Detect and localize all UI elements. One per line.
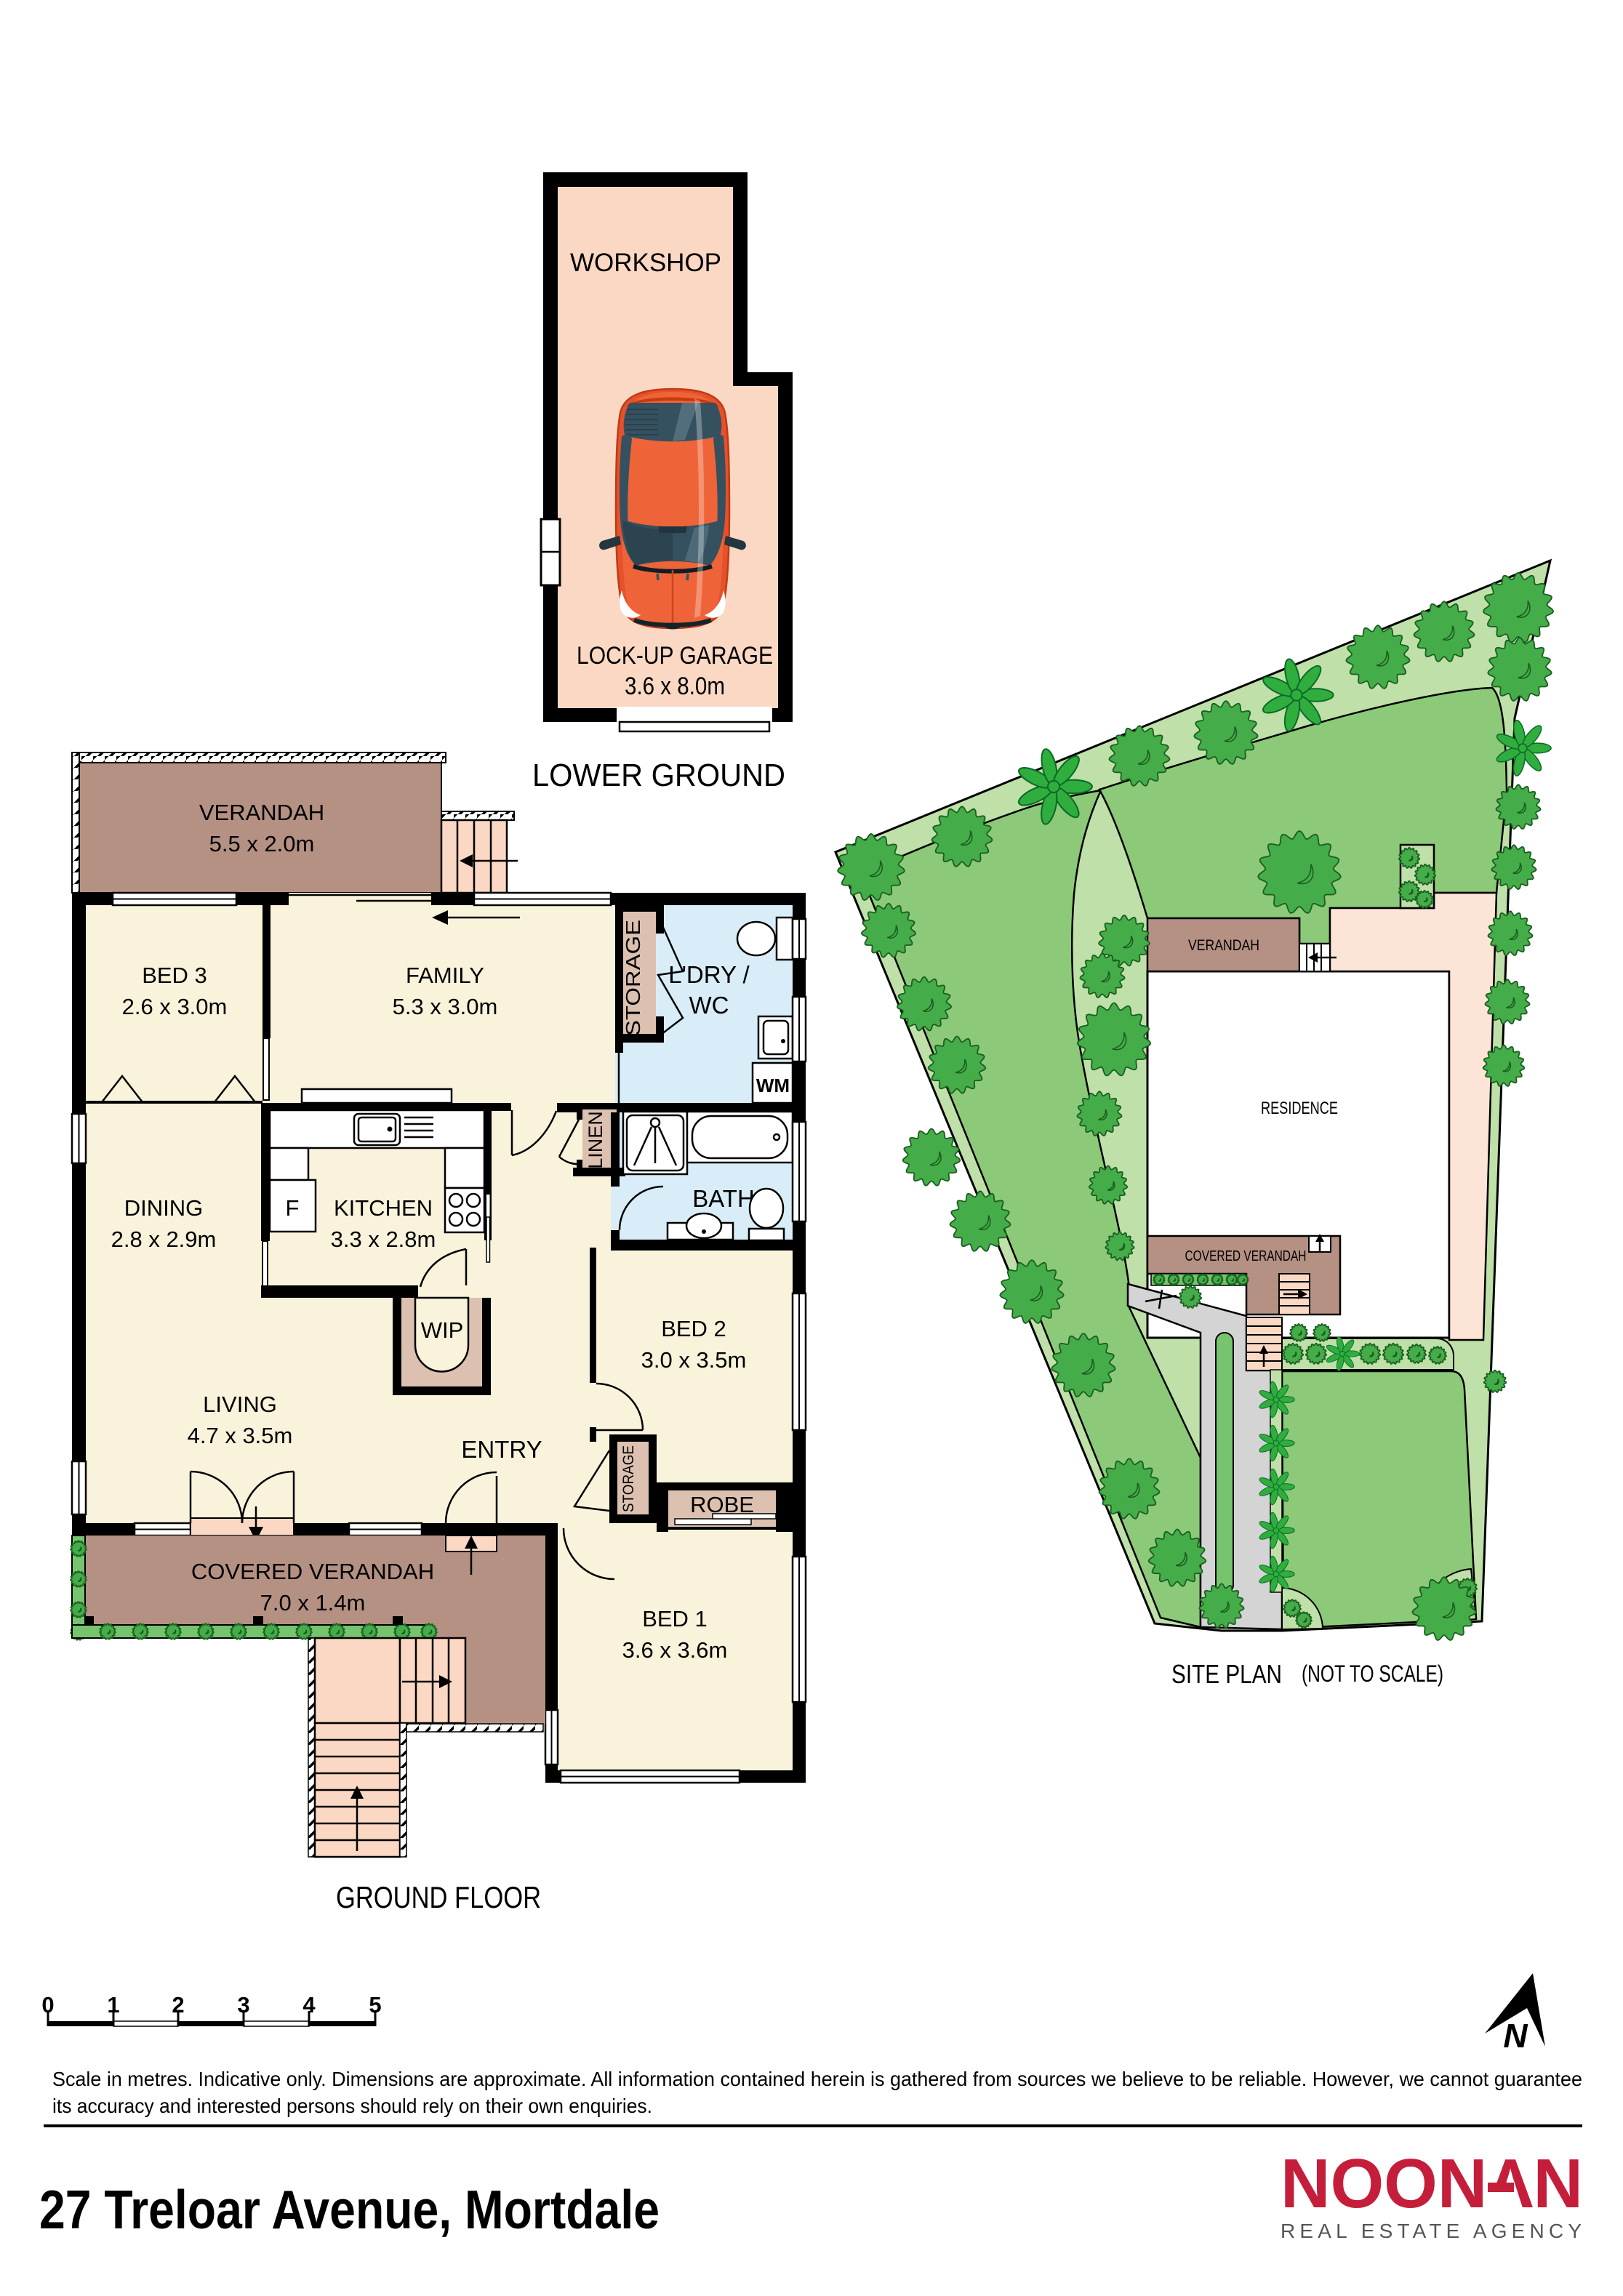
svg-text:BATH: BATH <box>692 1185 755 1212</box>
svg-text:2: 2 <box>172 1992 184 2018</box>
svg-text:LOCK-UP GARAGE: LOCK-UP GARAGE <box>577 642 773 670</box>
svg-text:WORKSHOP: WORKSHOP <box>570 249 721 277</box>
svg-text:DINING: DINING <box>124 1195 204 1221</box>
svg-text:5.3 x 3.0m: 5.3 x 3.0m <box>393 994 498 1019</box>
svg-text:WM: WM <box>756 1075 790 1096</box>
svg-text:F: F <box>286 1195 300 1221</box>
svg-text:FAMILY: FAMILY <box>406 963 484 988</box>
svg-text:BED 1: BED 1 <box>642 1606 708 1631</box>
svg-text:LINEN: LINEN <box>585 1111 606 1169</box>
svg-text:4.7 x 3.5m: 4.7 x 3.5m <box>188 1423 293 1448</box>
svg-text:KITCHEN: KITCHEN <box>334 1195 433 1221</box>
svg-text:STORAGE: STORAGE <box>620 1445 637 1512</box>
svg-text:RESIDENCE: RESIDENCE <box>1261 1099 1338 1118</box>
svg-text:5: 5 <box>369 1992 381 2018</box>
svg-text:COVERED VERANDAH: COVERED VERANDAH <box>191 1559 434 1584</box>
svg-text:LOWER GROUND: LOWER GROUND <box>532 758 785 793</box>
svg-text:L'DRY /: L'DRY / <box>668 961 750 988</box>
svg-text:3.0 x 3.5m: 3.0 x 3.5m <box>641 1347 747 1373</box>
svg-text:VERANDAH: VERANDAH <box>1188 937 1259 954</box>
svg-text:STORAGE: STORAGE <box>622 920 644 1036</box>
svg-text:WC: WC <box>689 992 729 1019</box>
svg-text:(NOT TO SCALE): (NOT TO SCALE) <box>1302 1661 1443 1687</box>
svg-text:1: 1 <box>107 1992 119 2018</box>
svg-text:VERANDAH: VERANDAH <box>199 800 324 825</box>
svg-text:ENTRY: ENTRY <box>461 1436 542 1463</box>
svg-text:3.6 x 8.0m: 3.6 x 8.0m <box>625 673 725 700</box>
svg-text:2.8 x 2.9m: 2.8 x 2.9m <box>111 1227 217 1252</box>
svg-text:LIVING: LIVING <box>203 1392 277 1417</box>
svg-text:BED 2: BED 2 <box>661 1316 726 1341</box>
svg-text:SITE PLAN: SITE PLAN <box>1171 1659 1282 1689</box>
svg-text:3.6 x 3.6m: 3.6 x 3.6m <box>622 1637 728 1663</box>
svg-text:GROUND FLOOR: GROUND FLOOR <box>336 1880 541 1914</box>
svg-text:N: N <box>1503 2017 1528 2055</box>
svg-text:its accuracy and interested pe: its accuracy and interested persons shou… <box>52 2095 652 2117</box>
svg-text:BED 3: BED 3 <box>142 963 207 988</box>
svg-text:Scale in metres. Indicative on: Scale in metres. Indicative only. Dimens… <box>52 2068 1582 2090</box>
svg-text:5.5 x 2.0m: 5.5 x 2.0m <box>209 831 315 856</box>
svg-text:3: 3 <box>237 1992 249 2018</box>
svg-text:3.3 x 2.8m: 3.3 x 2.8m <box>331 1227 436 1252</box>
svg-text:27 Treloar Avenue, Mortdale: 27 Treloar Avenue, Mortdale <box>39 2179 660 2240</box>
svg-text:ROBE: ROBE <box>690 1492 754 1517</box>
svg-text:WIP: WIP <box>421 1317 464 1343</box>
svg-text:0: 0 <box>41 1992 54 2018</box>
svg-text:NOONΛN: NOONΛN <box>1281 2145 1583 2223</box>
svg-text:7.0 x 1.4m: 7.0 x 1.4m <box>260 1590 366 1615</box>
svg-text:4: 4 <box>302 1992 316 2018</box>
svg-text:COVERED VERANDAH: COVERED VERANDAH <box>1185 1248 1307 1264</box>
svg-text:2.6 x 3.0m: 2.6 x 3.0m <box>122 994 228 1019</box>
svg-text:REAL ESTATE AGENCY: REAL ESTATE AGENCY <box>1281 2220 1582 2242</box>
